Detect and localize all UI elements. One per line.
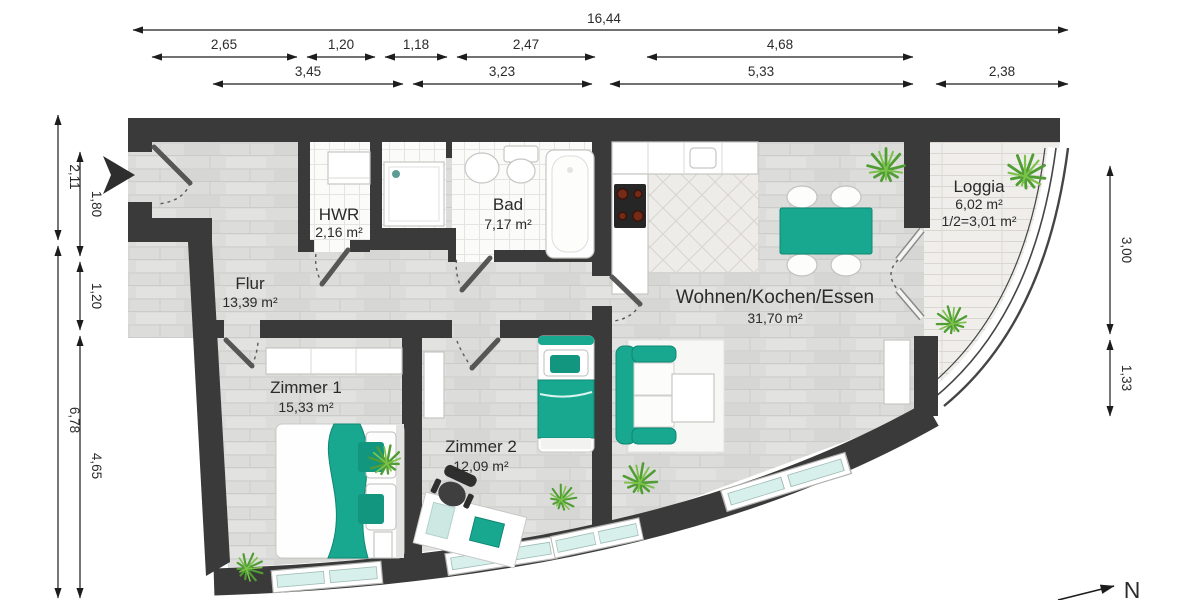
room-area-bad: 7,17 m²	[484, 216, 532, 232]
bathtub	[546, 150, 594, 258]
floor-plan-svg: HWR 2,16 m² Bad 7,17 m² Flur 13,39 m² Zi…	[0, 0, 1200, 600]
coffee-table	[672, 374, 714, 422]
dim-top: 1,18	[403, 37, 429, 52]
dim-left: 1,20	[89, 283, 104, 309]
room-label-bad: Bad	[493, 195, 523, 214]
washbasin	[465, 153, 499, 183]
toilet	[504, 146, 538, 183]
dim-top: 3,45	[295, 64, 321, 79]
dim-top: 1,20	[328, 37, 354, 52]
washing-machine	[328, 152, 370, 184]
kitchen-sink	[690, 148, 716, 168]
north-indicator: N	[1058, 577, 1140, 600]
dim-left: 4,65	[89, 453, 104, 479]
room-label-zimmer2: Zimmer 2	[445, 437, 517, 456]
dim-top: 2,38	[989, 64, 1015, 79]
dim-top: 4,68	[767, 37, 793, 52]
wardrobe	[266, 348, 402, 374]
room-area-loggia: 6,02 m²	[955, 196, 1003, 212]
room-area-zimmer2: 12,09 m²	[453, 458, 509, 474]
dim-top: 3,23	[489, 64, 515, 79]
wardrobe	[424, 352, 444, 418]
room-area-hwr: 2,16 m²	[315, 224, 363, 240]
room-label-zimmer1: Zimmer 1	[270, 378, 342, 397]
room-area-half-loggia: 1/2=3,01 m²	[941, 213, 1016, 229]
single-bed	[538, 336, 594, 452]
kitchen-counter-top	[612, 142, 758, 174]
room-label-flur: Flur	[235, 274, 265, 293]
floor-plan-page: HWR 2,16 m² Bad 7,17 m² Flur 13,39 m² Zi…	[0, 0, 1200, 600]
dim-left: 1,80	[89, 191, 104, 217]
sideboard	[884, 340, 910, 404]
room-label-hwr: HWR	[319, 205, 360, 224]
north-arrow-icon	[1058, 586, 1114, 600]
floor-kitchen-tiles	[648, 174, 758, 272]
dim-right: 3,00	[1119, 237, 1134, 263]
room-area-zimmer1: 15,33 m²	[278, 399, 334, 415]
dim-top: 2,47	[513, 37, 539, 52]
shower-head	[392, 170, 400, 178]
bed-cushion	[358, 494, 384, 524]
room-label-wohnen: Wohnen/Kochen/Essen	[676, 287, 874, 308]
dim-top: 5,33	[748, 64, 774, 79]
sofa	[616, 346, 676, 444]
bedside-bench	[374, 532, 392, 558]
room-label-loggia: Loggia	[953, 177, 1005, 196]
dim-top: 2,65	[211, 37, 237, 52]
dim-right: 1,33	[1119, 365, 1134, 391]
dim-top-total: 16,44	[587, 11, 621, 26]
room-area-flur: 13,39 m²	[222, 294, 278, 310]
room-area-wohnen: 31,70 m²	[747, 310, 803, 326]
north-label: N	[1124, 577, 1141, 600]
dining-table	[780, 208, 872, 254]
